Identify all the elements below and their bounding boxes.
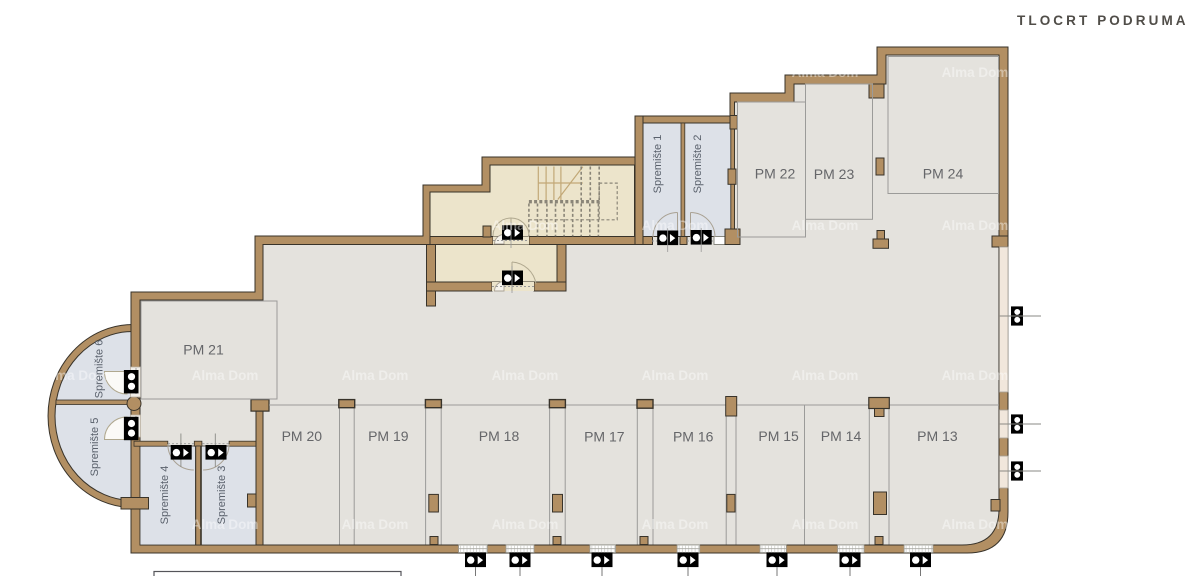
svg-text:Alma Dom: Alma Dom [942, 218, 1009, 233]
svg-text:Spremište 6: Spremište 6 [94, 340, 106, 399]
svg-text:Alma Dom: Alma Dom [492, 368, 559, 383]
svg-text:PM 19: PM 19 [368, 428, 409, 444]
svg-text:PM 23: PM 23 [814, 166, 855, 182]
svg-text:Spremište 2: Spremište 2 [692, 135, 704, 194]
svg-text:PM 14: PM 14 [821, 428, 862, 444]
svg-text:PM 21: PM 21 [183, 342, 224, 358]
svg-text:PM 17: PM 17 [584, 429, 625, 445]
svg-text:Alma Dom: Alma Dom [192, 368, 259, 383]
svg-text:Alma Dom: Alma Dom [792, 368, 859, 383]
svg-text:Spremište 1: Spremište 1 [652, 135, 664, 194]
svg-text:Alma Dom: Alma Dom [792, 517, 859, 532]
svg-text:Alma Dom: Alma Dom [642, 218, 709, 233]
svg-text:Alma Dom: Alma Dom [792, 218, 859, 233]
svg-text:PM 24: PM 24 [923, 166, 964, 182]
svg-text:Alma Dom: Alma Dom [642, 368, 709, 383]
svg-text:PM 13: PM 13 [917, 428, 958, 444]
svg-text:Alma Dom: Alma Dom [342, 517, 409, 532]
svg-text:Spremište 5: Spremište 5 [89, 418, 101, 477]
svg-text:Alma Dom: Alma Dom [492, 218, 559, 233]
svg-text:Alma Dom: Alma Dom [642, 517, 709, 532]
svg-text:TLOCRT PODRUMA: TLOCRT PODRUMA [1017, 13, 1189, 28]
svg-text:Spremište 3: Spremište 3 [216, 466, 228, 525]
svg-text:PM 15: PM 15 [758, 428, 799, 444]
svg-text:Alma Dom: Alma Dom [792, 65, 859, 80]
svg-text:Alma Dom: Alma Dom [942, 368, 1009, 383]
svg-text:Alma Dom: Alma Dom [492, 517, 559, 532]
svg-text:Spremište 4: Spremište 4 [159, 466, 171, 525]
svg-text:PM 18: PM 18 [479, 428, 520, 444]
svg-text:PM 20: PM 20 [282, 428, 323, 444]
svg-text:Alma Dom: Alma Dom [942, 65, 1009, 80]
svg-text:PM 22: PM 22 [755, 166, 796, 182]
svg-text:Alma Dom: Alma Dom [342, 368, 409, 383]
svg-text:Alma Dom: Alma Dom [942, 517, 1009, 532]
svg-text:PM 16: PM 16 [673, 429, 714, 445]
